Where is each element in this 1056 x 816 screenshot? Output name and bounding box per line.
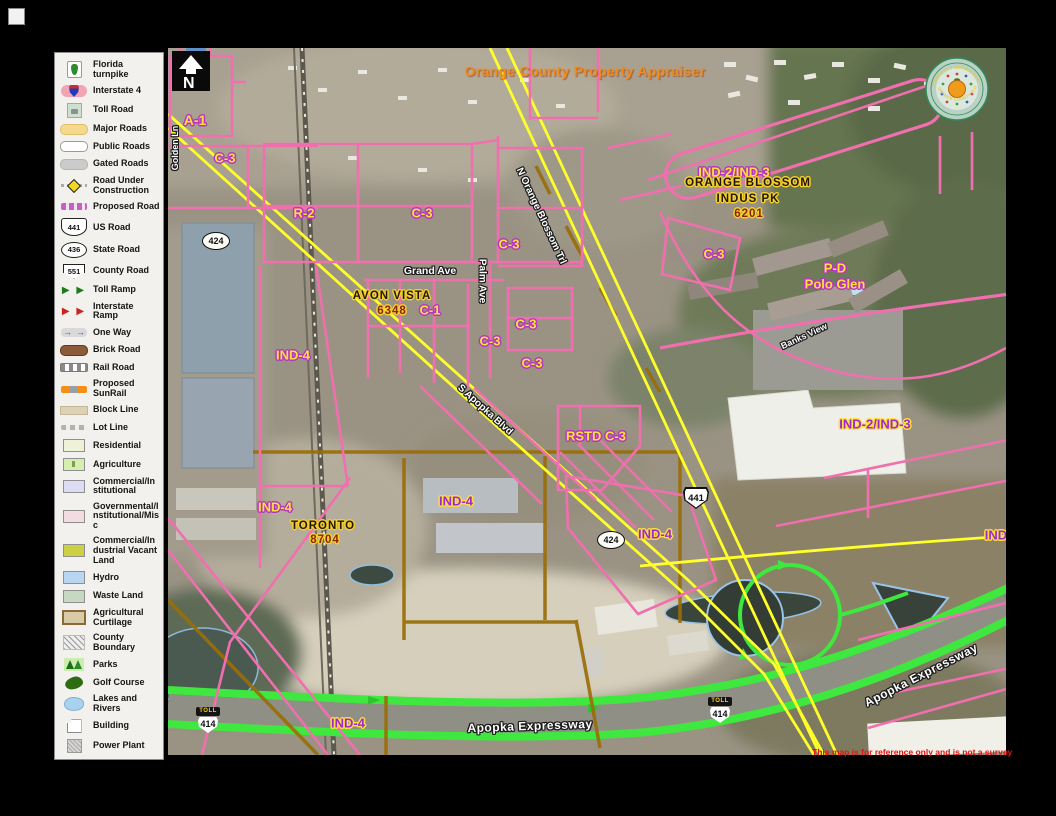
street-label: Palm Ave	[477, 259, 488, 303]
legend-item-label: Interstate 4	[93, 86, 160, 96]
legend-item-label: Toll Road	[93, 105, 160, 115]
subdivision-label: AVON VISTA	[353, 290, 432, 302]
interstate-ramp-icon	[59, 306, 89, 317]
window-corner-chip	[8, 8, 25, 25]
legend-item-label: Florida turnpike	[93, 60, 160, 79]
toll-shield-number: 414	[710, 707, 730, 723]
zoning-label: IND	[985, 528, 1006, 543]
map-canvas[interactable]: Orange County Property Appraiser N PROPE…	[168, 48, 1006, 755]
subdivision-label: ORANGE BLOSSOM	[685, 177, 811, 189]
interstate-4-icon	[59, 85, 89, 97]
zoning-label: C-3	[522, 356, 543, 371]
legend-item: Hydro	[59, 571, 160, 584]
legend-item: Proposed Road	[59, 201, 160, 213]
zoning-label: IND-4	[258, 500, 292, 515]
legend-item-label: Waste Land	[93, 591, 160, 601]
legend-item-label: Lakes and Rivers	[93, 694, 160, 713]
major-roads-icon	[59, 124, 89, 135]
zoning-label: RSTD C-3	[566, 429, 626, 444]
aerial-basemap	[168, 48, 1006, 755]
zoning-label: C-3	[480, 334, 501, 349]
legend-item-label: Rail Road	[93, 363, 160, 373]
legend-item: Gated Roads	[59, 158, 160, 170]
toll-road-icon	[59, 103, 89, 118]
street-label: Grand Ave	[404, 265, 456, 277]
legend-item-label: Proposed Road	[93, 202, 160, 212]
vacant-land-zone-icon	[59, 544, 89, 557]
lakes-and-rivers-icon	[59, 697, 89, 711]
agriculture-zone-icon	[59, 458, 89, 471]
toll-banner: TOLL	[708, 697, 732, 706]
legend-item-label: Parks	[93, 660, 160, 670]
legend-item: Toll Ramp	[59, 284, 160, 296]
map-title: Orange County Property Appraiser	[465, 63, 706, 79]
state-road-shield-icon: 436	[59, 242, 89, 258]
legend-item-label: County Boundary	[93, 633, 160, 652]
north-compass: N	[172, 51, 210, 91]
subdivision-number: 6348	[377, 305, 407, 317]
residential-zone-icon	[59, 439, 89, 452]
legend-item: Golf Course	[59, 677, 160, 689]
zoning-label: C-3	[499, 237, 520, 252]
legend-item: Interstate 4	[59, 85, 160, 97]
county-road-shield: 424	[597, 531, 625, 549]
legend-item-label: Commercial/Institutional	[93, 477, 160, 496]
legend-item: Public Roads	[59, 141, 160, 153]
one-way-icon	[59, 328, 89, 337]
legend-item: 436State Road	[59, 242, 160, 258]
legend-item: Block Line	[59, 404, 160, 416]
zoning-label: IND-4	[638, 527, 672, 542]
commercial-institutional-zone-icon	[59, 480, 89, 493]
legend-panel: Florida turnpike Interstate 4 Toll Road …	[54, 52, 164, 760]
county-boundary-icon	[59, 635, 89, 650]
legend-item-label: State Road	[93, 245, 160, 255]
governmental-zone-icon	[59, 510, 89, 523]
legend-item-label: Block Line	[93, 405, 160, 415]
lot-line-icon	[59, 425, 89, 430]
waste-land-zone-icon	[59, 590, 89, 603]
toll-banner: TOLL	[196, 707, 220, 716]
zoning-label: IND-4	[331, 716, 365, 731]
zoning-label: Polo Glen	[805, 277, 866, 292]
zoning-label: IND-2/IND-3	[839, 417, 911, 432]
legend-item: Rail Road	[59, 362, 160, 374]
legend-item-label: Commercial/Industrial Vacant Land	[93, 536, 160, 565]
proposed-road-icon	[59, 203, 89, 210]
florida-turnpike-icon	[59, 61, 89, 78]
legend-item: Major Roads	[59, 123, 160, 135]
legend-item: 551County Road	[59, 264, 160, 279]
subdivision-number: 6201	[734, 208, 764, 220]
gated-roads-icon	[59, 159, 89, 170]
legend-item-label: Hydro	[93, 573, 160, 583]
legend-item-label: Golf Course	[93, 678, 160, 688]
legend-item-label: Public Roads	[93, 142, 160, 152]
toll-road-shield: TOLL 414	[708, 697, 732, 723]
legend-item: Agriculture	[59, 458, 160, 471]
zoning-label: C-3	[516, 317, 537, 332]
legend-item-label: Toll Ramp	[93, 285, 160, 295]
legend-item: One Way	[59, 327, 160, 339]
legend-item: Road Under Construction	[59, 176, 160, 195]
legend-item: Power Plant	[59, 739, 160, 753]
agricultural-curtilage-zone-icon	[59, 610, 89, 625]
toll-road-shield: TOLL 414	[196, 707, 220, 733]
north-arrow-icon: N	[172, 51, 210, 91]
block-line-icon	[59, 406, 89, 415]
legend-item-label: Power Plant	[93, 741, 160, 751]
zoning-label: A-1	[184, 112, 207, 128]
legend-item: Interstate Ramp	[59, 302, 160, 321]
legend-item-label: Gated Roads	[93, 159, 160, 169]
zoning-label: P-D	[824, 261, 846, 276]
legend-item: Brick Road	[59, 344, 160, 356]
legend-item: Residential	[59, 439, 160, 452]
legend-item: Florida turnpike	[59, 60, 160, 79]
public-roads-icon	[59, 141, 89, 152]
legend-item-label: Lot Line	[93, 423, 160, 433]
golf-course-icon	[59, 677, 89, 689]
legend-item-label: Brick Road	[93, 345, 160, 355]
legend-item: Commercial/Institutional	[59, 477, 160, 496]
subdivision-label: TORONTO	[291, 520, 355, 532]
subdivision-label: INDUS PK	[717, 193, 780, 205]
legend-item-label: One Way	[93, 328, 160, 338]
legend-item: Parks	[59, 658, 160, 671]
power-plant-icon	[59, 739, 89, 753]
parks-icon	[59, 658, 89, 671]
zoning-label: C-3	[704, 247, 725, 262]
legend-item: Commercial/Industrial Vacant Land	[59, 536, 160, 565]
legend-item: Agricultural Curtilage	[59, 608, 160, 627]
street-label: Golden Ln	[170, 126, 180, 171]
legend-item-label: Proposed SunRail	[93, 379, 160, 398]
legend-item-label: Road Under Construction	[93, 176, 160, 195]
legend-item: Building	[59, 719, 160, 733]
page: { "legend": { "items": [ {"label": "Flor…	[0, 0, 1056, 816]
subdivision-number: 8704	[310, 534, 340, 546]
legend-item: Waste Land	[59, 590, 160, 603]
legend-item-label: Residential	[93, 441, 160, 451]
building-icon	[59, 719, 89, 733]
legend-item-label: County Road	[93, 266, 160, 276]
property-appraiser-seal: PROPERTY APPRAISER ORANGE COUNTY FLORIDA	[924, 56, 990, 122]
legend-item: County Boundary	[59, 633, 160, 652]
us-road-shield-icon: 441	[59, 218, 89, 236]
zoning-label: R-2	[294, 206, 315, 221]
toll-shield-number: 414	[198, 717, 218, 733]
zoning-label: C-3	[412, 206, 433, 221]
proposed-sunrail-icon	[59, 386, 89, 393]
zoning-label: IND-4	[276, 348, 310, 363]
legend-item: Proposed SunRail	[59, 379, 160, 398]
legend-item: 441US Road	[59, 218, 160, 236]
rail-road-icon	[59, 363, 89, 372]
brick-road-icon	[59, 345, 89, 356]
legend-item-label: Agriculture	[93, 460, 160, 470]
zoning-label: C-1	[420, 303, 441, 318]
legend-item: Lakes and Rivers	[59, 694, 160, 713]
zoning-label: C-3	[215, 151, 236, 166]
legend-item-label: Governmental/Institutional/Misc	[93, 502, 160, 531]
legend-item-label: Major Roads	[93, 124, 160, 134]
legend-item-label: Agricultural Curtilage	[93, 608, 160, 627]
legend-item-label: US Road	[93, 223, 160, 233]
legend-item: Toll Road	[59, 103, 160, 118]
legend-item: Governmental/Institutional/Misc	[59, 502, 160, 531]
road-under-construction-icon	[59, 180, 89, 192]
hydro-zone-icon	[59, 571, 89, 584]
county-road-shield-icon: 551	[59, 264, 89, 279]
county-road-shield: 424	[202, 232, 230, 250]
legend-item: Lot Line	[59, 422, 160, 434]
svg-text:N: N	[183, 75, 195, 91]
legend-item-label: Building	[93, 721, 160, 731]
toll-ramp-icon	[59, 285, 89, 296]
legend-item-label: Interstate Ramp	[93, 302, 160, 321]
disclaimer-text: This map is for reference only and is no…	[812, 747, 1012, 757]
zoning-label: IND-4	[439, 494, 473, 509]
